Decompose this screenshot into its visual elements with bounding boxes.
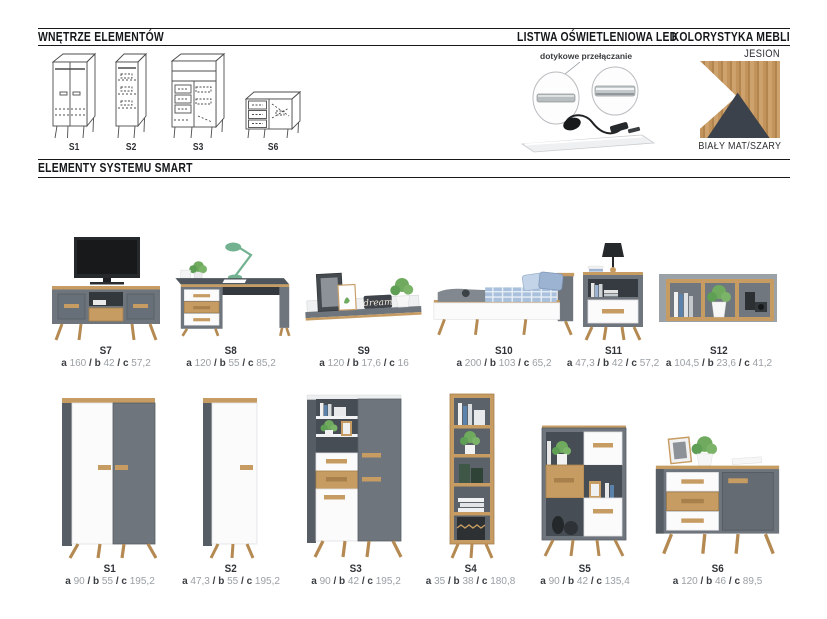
- wireframe-label: S6: [267, 142, 279, 153]
- wireframe-wardrobe-s2: [113, 48, 149, 140]
- product-card-s8: S8 a 120 / b 55 / c 85,2: [171, 232, 291, 369]
- product-card-s7: S7 a 160 / b 42 / c 57,2: [48, 232, 164, 369]
- color-swatch: [700, 61, 780, 138]
- product-card-s5: S5 a 90 / b 42 / c 135,4: [535, 388, 635, 587]
- interior-item-s3: S3: [168, 48, 228, 153]
- product-dimensions: a 90 / b 42 / c 195,2: [311, 576, 401, 587]
- product-id: S4: [464, 563, 477, 575]
- product-card-s6: S6 a 120 / b 46 / c 89,5: [650, 388, 785, 587]
- color-label-bialy-mat-szary: BIAŁY MAT/SZARY: [688, 140, 792, 152]
- product-card-s12: S12 a 104,5 / b 23,6 / c 41,2: [657, 232, 781, 369]
- product-photo-nightstand: [572, 232, 654, 344]
- wireframe-sideboard-s6: [242, 48, 304, 140]
- wireframe-cabinet-s3: [168, 48, 228, 140]
- product-id: S7: [99, 345, 112, 357]
- product-dimensions: a 104,5 / b 23,6 / c 41,2: [666, 358, 772, 369]
- product-card-s4: S4 a 35 / b 38 / c 180,8: [438, 388, 503, 587]
- interior-item-s6: S6: [242, 48, 304, 153]
- header-underline-rule: [38, 45, 790, 46]
- product-card-s9: dream S9 a 120 / b 17,6 / c 16: [304, 232, 424, 369]
- product-photo-tv-stand: [48, 232, 164, 344]
- product-photo-low-bookcase: [535, 388, 635, 562]
- product-id: S1: [103, 563, 116, 575]
- wireframe-label: S3: [192, 142, 204, 153]
- product-dimensions: a 120 / b 46 / c 89,5: [673, 576, 763, 587]
- wireframe-label: S2: [125, 142, 137, 153]
- product-id: S2: [224, 563, 237, 575]
- product-id: S5: [578, 563, 591, 575]
- dream-sign-text: dream: [363, 298, 393, 310]
- section-bottom-rule: [38, 177, 790, 178]
- product-id: S3: [349, 563, 362, 575]
- product-photo-sideboard: [650, 388, 785, 562]
- catalog-page: WNĘTRZE ELEMENTÓW LISTWA OŚWIETLENIOWA L…: [0, 0, 827, 619]
- product-id: S12: [709, 345, 729, 357]
- product-card-s11: S11 a 47,3 / b 42 / c 57,2: [572, 232, 654, 369]
- product-dimensions: a 160 / b 42 / c 57,2: [61, 358, 151, 369]
- product-id: S6: [711, 563, 724, 575]
- product-photo-desk: [171, 232, 291, 344]
- colors-title: KOLORYSTYKA MEBLI: [642, 30, 790, 44]
- product-id: S11: [604, 345, 623, 357]
- product-photo-wardrobe-2-door: [55, 388, 165, 562]
- led-strip-photo: [514, 58, 664, 161]
- section-title: ELEMENTY SYSTEMU SMART: [38, 161, 231, 175]
- product-dimensions: a 200 / b 103 / c 65,2: [456, 358, 551, 369]
- product-id: S10: [494, 345, 514, 357]
- product-photo-wall-cube-shelf: [657, 232, 781, 344]
- interior-item-s1: S1: [46, 48, 102, 153]
- product-card-s2: S2 a 47,3 / b 55 / c 195,2: [188, 388, 274, 587]
- wireframe-wardrobe-s1: [49, 48, 99, 140]
- product-dimensions: a 35 / b 38 / c 180,8: [426, 576, 516, 587]
- product-id: S9: [357, 345, 370, 357]
- product-card-s1: S1 a 90 / b 55 / c 195,2: [55, 388, 165, 587]
- wireframe-label: S1: [68, 142, 80, 153]
- product-photo-tall-cabinet: [300, 388, 412, 562]
- product-card-s10: S10 a 200 / b 103 / c 65,2: [429, 232, 579, 369]
- product-card-s3: S3 a 90 / b 42 / c 195,2: [300, 388, 412, 587]
- product-dimensions: a 47,3 / b 42 / c 57,2: [567, 358, 659, 369]
- product-photo-bed: [429, 232, 579, 344]
- interior-item-s2: S2: [112, 48, 150, 153]
- product-dimensions: a 120 / b 17,6 / c 16: [319, 358, 409, 369]
- product-dimensions: a 47,3 / b 55 / c 195,2: [182, 576, 280, 587]
- product-photo-wall-shelf: dream: [304, 232, 424, 344]
- product-id: S8: [224, 345, 237, 357]
- product-photo-open-bookcase: [438, 388, 503, 562]
- product-dimensions: a 90 / b 42 / c 135,4: [540, 576, 630, 587]
- color-label-jesion: JESION: [741, 48, 783, 60]
- product-photo-wardrobe-1-door: [188, 388, 274, 562]
- product-dimensions: a 90 / b 55 / c 195,2: [65, 576, 155, 587]
- interiors-title: WNĘTRZE ELEMENTÓW: [38, 30, 195, 44]
- product-dimensions: a 120 / b 55 / c 85,2: [186, 358, 276, 369]
